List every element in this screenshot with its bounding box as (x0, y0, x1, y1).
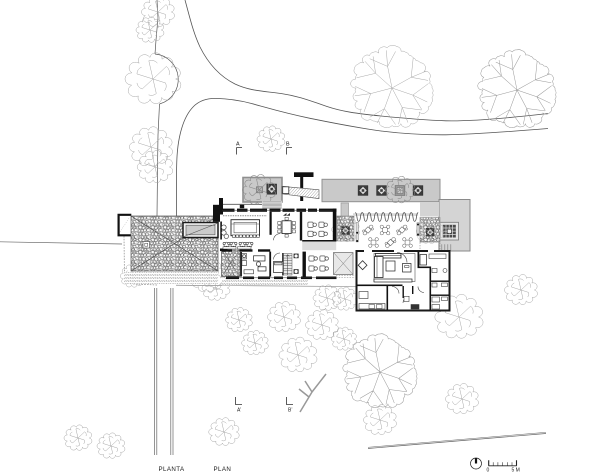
svg-text:A: A (236, 142, 240, 148)
svg-text:5 M: 5 M (512, 468, 520, 472)
svg-text:PLAN: PLAN (214, 466, 232, 472)
svg-text:B’: B’ (288, 408, 292, 414)
svg-text:B: B (286, 142, 290, 148)
svg-text:PLANTA: PLANTA (159, 466, 185, 472)
svg-text:0: 0 (487, 468, 490, 472)
svg-text:A’: A’ (237, 408, 241, 414)
